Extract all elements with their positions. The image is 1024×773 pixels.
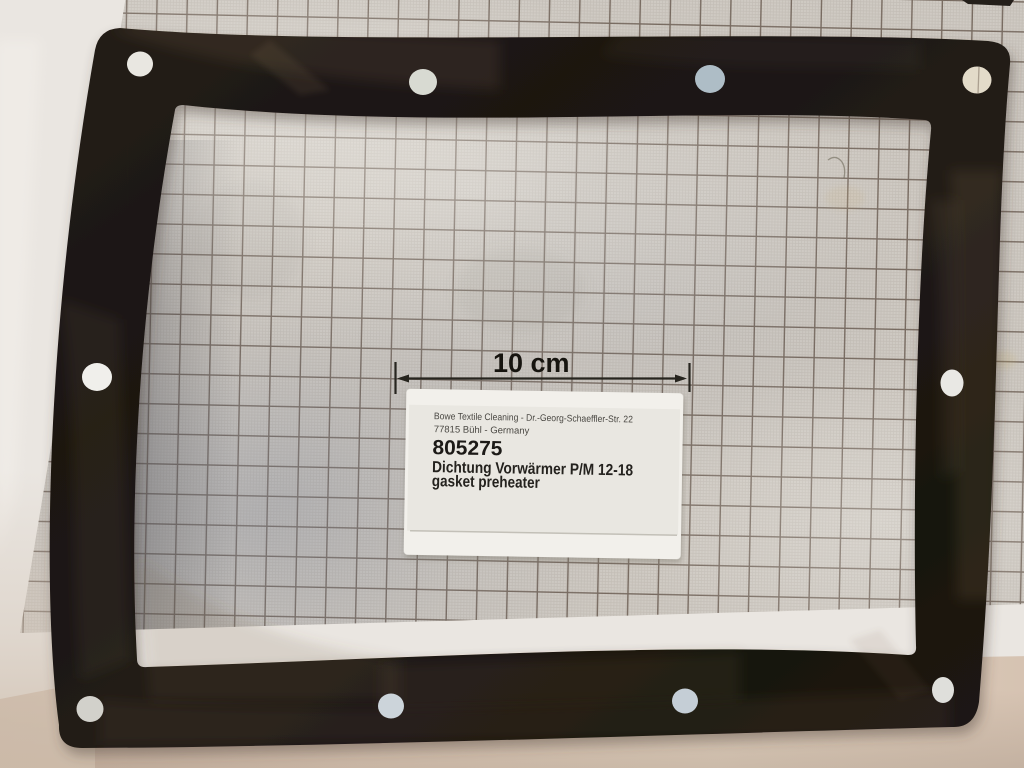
svg-text:gasket preheater: gasket preheater (432, 473, 540, 492)
svg-text:77815 Bühl - Germany: 77815 Bühl - Germany (434, 424, 530, 437)
svg-text:10 cm: 10 cm (493, 348, 570, 378)
svg-text:805275: 805275 (432, 436, 502, 460)
